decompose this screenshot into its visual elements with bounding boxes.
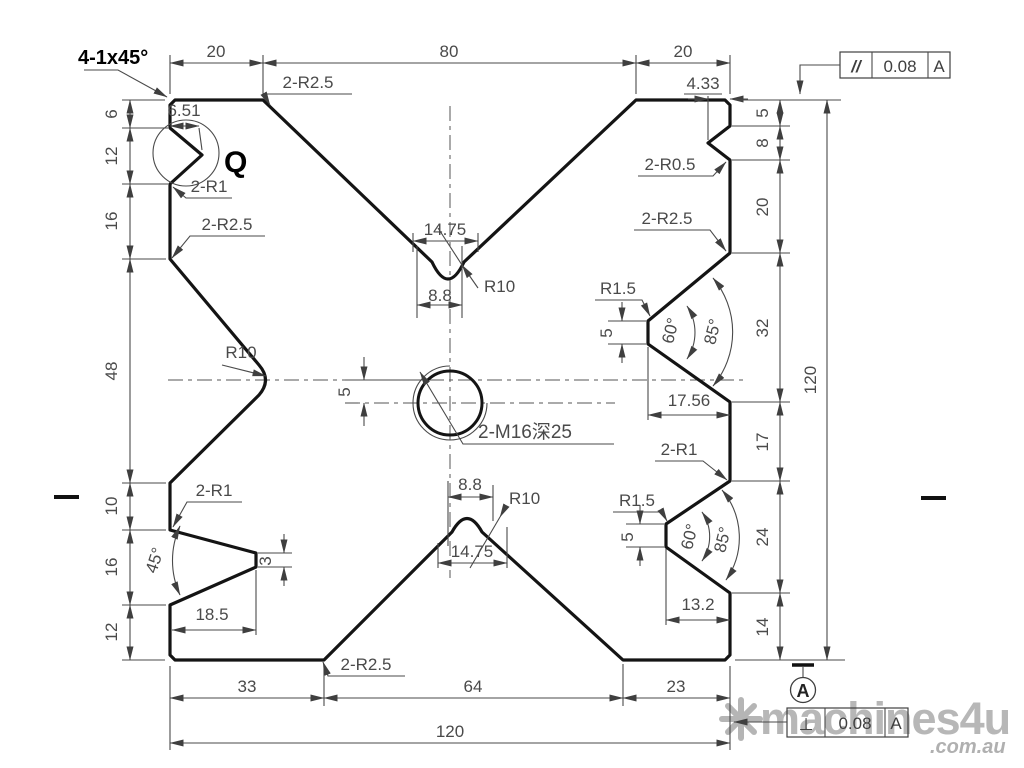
br-60-arc [702, 512, 710, 561]
dim-topv-88: 8.8 [428, 286, 452, 305]
leader-tr-r25 [634, 230, 726, 251]
label-left-notch-radius: R10 [225, 343, 256, 362]
label-bottom-corner-radius: 2-R2.5 [340, 655, 391, 674]
bottom-dimensions: 33 64 23 120 2-R2.5 [170, 655, 730, 750]
chamfer-note: 4-1x45° [78, 47, 148, 69]
label-tr-r05: 2-R0.5 [644, 155, 695, 174]
leader-botv-radius [500, 506, 506, 517]
dim-right-20: 20 [753, 198, 772, 217]
fcf-perp-tolerance: 0.08 [838, 714, 871, 733]
dim-left-12b: 12 [102, 623, 121, 642]
dim-left-16b: 16 [102, 558, 121, 577]
dim-right-120: 120 [801, 366, 820, 394]
dim-br-60: 60° [677, 522, 702, 552]
label-topv-radius: R10 [484, 277, 515, 296]
leader-tl-corner-radius [264, 94, 352, 105]
dim-br-depth-132: 13.2 [681, 595, 714, 614]
left-dimension-chain: 6 12 16 48 10 16 12 R10 [102, 100, 266, 660]
dim-tr-notch-433: 4.33 [686, 74, 719, 93]
watermark-logo-icon [722, 700, 760, 738]
fcf-parallel-datum: A [933, 57, 945, 76]
dim-left-48: 48 [102, 362, 121, 381]
q-depth-ext [199, 128, 202, 150]
dim-bl-tip-3: 3 [256, 556, 275, 565]
dim-bl-45: 45° [142, 545, 168, 575]
right-dimension-chain: 5 8 20 32 17 24 14 120 [732, 100, 845, 660]
dim-top-20-left: 20 [207, 42, 226, 61]
dim-mid-60: 60° [658, 316, 683, 346]
fcf-parallel-tolerance: 0.08 [883, 57, 916, 76]
leader-bl-2r1 [173, 502, 242, 527]
fcf-perp-datum: A [890, 714, 902, 733]
dim-right-8: 8 [753, 138, 772, 147]
top-right-dimensions: 4.33 // 0.08 A 2-R0.5 2-R2.5 [634, 52, 950, 251]
fcf-parallelism: // 0.08 A [800, 52, 950, 94]
dim-topv-1475: 14.75 [424, 220, 467, 239]
watermark-domain: .com.au [930, 736, 1006, 758]
label-left-upper-radius: 2-R2.5 [201, 215, 252, 234]
label-q-notch-radius: 2-R1 [191, 177, 228, 196]
label-tr-r25: 2-R2.5 [641, 209, 692, 228]
datum-label: A [797, 681, 810, 701]
label-botv-radius: R10 [509, 489, 540, 508]
dim-hole-offset-5: 5 [335, 387, 354, 396]
dim-botv-1475: 14.75 [451, 542, 494, 561]
top-dimensions: 20 80 20 4-1x45° [78, 42, 730, 97]
dim-mid-depth-1756: 17.56 [668, 391, 711, 410]
dim-top-80: 80 [440, 42, 459, 61]
dim-right-5: 5 [753, 108, 772, 117]
dim-botv-88: 8.8 [458, 475, 482, 494]
dim-bottom-23: 23 [667, 677, 686, 696]
label-mid-r15: R1.5 [600, 279, 636, 298]
dim-right-17: 17 [753, 433, 772, 452]
label-tl-corner-radius: 2-R2.5 [282, 73, 333, 92]
dim-mid-tip-5: 5 [597, 328, 616, 337]
detail-label-q: Q [224, 146, 247, 179]
left-extension-lines [122, 100, 168, 660]
mid-right-notch-dimensions: R1.5 5 60° 85° 17.56 [595, 278, 733, 420]
bottom-right-notch-dimensions: 2-R1 R1.5 5 60° 85° 13.2 [613, 440, 739, 625]
dim-top-20-right: 20 [674, 42, 693, 61]
dim-bl-depth-185: 18.5 [195, 605, 228, 624]
perpendicularity-symbol-icon: ⊥ [799, 715, 814, 734]
fcf-parallel-leader [800, 65, 840, 94]
dim-right-24: 24 [753, 528, 772, 547]
label-bl-2r1: 2-R1 [196, 481, 233, 500]
dim-bottom-120: 120 [436, 722, 464, 741]
dim-left-10: 10 [102, 497, 121, 516]
dim-mid-85: 85° [700, 317, 725, 347]
dim-br-tip-5: 5 [618, 532, 637, 541]
label-br-2r1: 2-R1 [661, 440, 698, 459]
part-drawing-canvas: machines4u .com.au 20 80 20 4-1x45° 6.51… [0, 0, 1024, 768]
dim-br-85: 85° [710, 525, 735, 555]
parallelism-symbol-icon: // [850, 57, 863, 76]
dim-left-6: 6 [102, 109, 121, 118]
thread-callout: 2-M16深25 [478, 421, 572, 443]
right-extension-lines [732, 126, 845, 660]
dim-right-32: 32 [753, 319, 772, 338]
bottom-v-notch-dimensions: 8.8 R10 14.75 [438, 475, 540, 568]
dim-bottom-33: 33 [238, 677, 257, 696]
bottom-left-notch-dimensions: 2-R1 45° 3 18.5 [142, 481, 292, 635]
bl-45-arc [172, 526, 180, 595]
dim-right-14: 14 [753, 618, 772, 637]
chamfer-note-leader [84, 70, 167, 97]
centerlines [54, 106, 946, 578]
top-v-notch-dimensions: 14.75 8.8 R10 [413, 220, 515, 318]
dim-left-12: 12 [102, 147, 121, 166]
label-br-r15: R1.5 [619, 491, 655, 510]
dim-q-depth: 6.51 [167, 101, 200, 120]
dim-left-16: 16 [102, 212, 121, 231]
mid-60-arc [687, 306, 695, 359]
dim-bottom-64: 64 [464, 677, 483, 696]
leader-br-2r1 [655, 461, 727, 480]
leader-topv-radius [462, 265, 478, 288]
leader-left-upper-radius [172, 236, 265, 258]
engineering-drawing-page: machines4u .com.au 20 80 20 4-1x45° 6.51… [0, 0, 1024, 768]
